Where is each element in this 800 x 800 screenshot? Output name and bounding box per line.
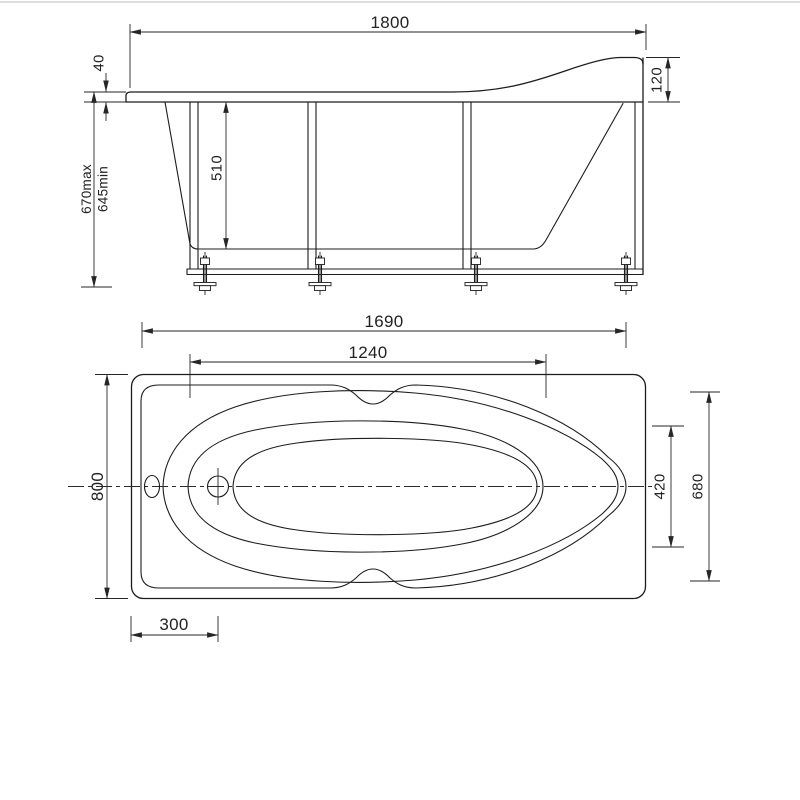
foot-base bbox=[471, 286, 482, 291]
foot-plate bbox=[615, 283, 637, 286]
drawing-canvas: 1800 40 670max 645min 510 120 bbox=[0, 0, 800, 800]
tub-inner-shell bbox=[165, 102, 623, 249]
extension-lines bbox=[84, 92, 126, 102]
dim-overall-length: 1800 bbox=[130, 13, 646, 88]
dim-label-max: 670max bbox=[79, 164, 94, 214]
dim-label: 510 bbox=[208, 155, 225, 181]
rim-top-profile bbox=[131, 58, 643, 93]
adjustable-feet bbox=[194, 252, 637, 295]
dim-label: 1240 bbox=[348, 343, 387, 362]
dim-backrest-rise: 120 bbox=[646, 58, 680, 103]
frame-bottom-rail bbox=[187, 269, 643, 275]
foot-nut bbox=[316, 258, 325, 265]
adjustable-foot bbox=[465, 252, 487, 295]
dim-rim-thickness: 40 bbox=[84, 54, 126, 121]
adjustable-foot bbox=[309, 252, 331, 295]
dim-label: 40 bbox=[90, 54, 107, 71]
frame-post-2 bbox=[308, 102, 316, 269]
tub-plan-outline bbox=[68, 375, 656, 599]
dim-basin-length: 1240 bbox=[190, 343, 546, 398]
extension-lines bbox=[130, 24, 646, 88]
foot-base bbox=[200, 286, 211, 291]
dim-label-min: 645min bbox=[96, 166, 111, 212]
dim-label: 1690 bbox=[364, 312, 403, 331]
side-view: 1800 40 670max 645min 510 120 bbox=[79, 13, 680, 295]
dim-label: 120 bbox=[648, 67, 665, 93]
dim-label: 300 bbox=[159, 615, 188, 634]
foot-nut bbox=[622, 258, 631, 265]
adjustable-foot bbox=[194, 252, 216, 295]
dim-inner-height: 510 bbox=[208, 102, 226, 249]
tub-side-profile bbox=[126, 58, 643, 275]
dim-rim-oval-width: 680 bbox=[689, 392, 720, 581]
foot-plate bbox=[465, 283, 487, 286]
bathtub-technical-drawing: 1800 40 670max 645min 510 120 bbox=[0, 0, 800, 800]
dim-basin-width: 420 bbox=[651, 426, 684, 547]
foot-nut bbox=[472, 258, 481, 265]
dim-label: 420 bbox=[651, 474, 668, 500]
dim-overall-height: 670max 645min bbox=[79, 92, 112, 287]
frame-post-3 bbox=[463, 102, 471, 269]
foot-plate bbox=[309, 283, 331, 286]
rim-left-cap bbox=[126, 92, 131, 102]
foot-base bbox=[315, 286, 326, 291]
foot-base bbox=[621, 286, 632, 291]
foot-plate bbox=[194, 283, 216, 286]
top-view: 1690 1240 800 420 680 300 bbox=[68, 312, 720, 642]
dim-label: 800 bbox=[88, 472, 107, 501]
dim-drain-offset: 300 bbox=[131, 615, 218, 642]
dim-label: 680 bbox=[689, 474, 706, 500]
adjustable-foot bbox=[615, 252, 637, 295]
frame-post-1 bbox=[190, 102, 198, 269]
foot-nut bbox=[201, 258, 210, 265]
dim-label: 1800 bbox=[370, 13, 409, 32]
